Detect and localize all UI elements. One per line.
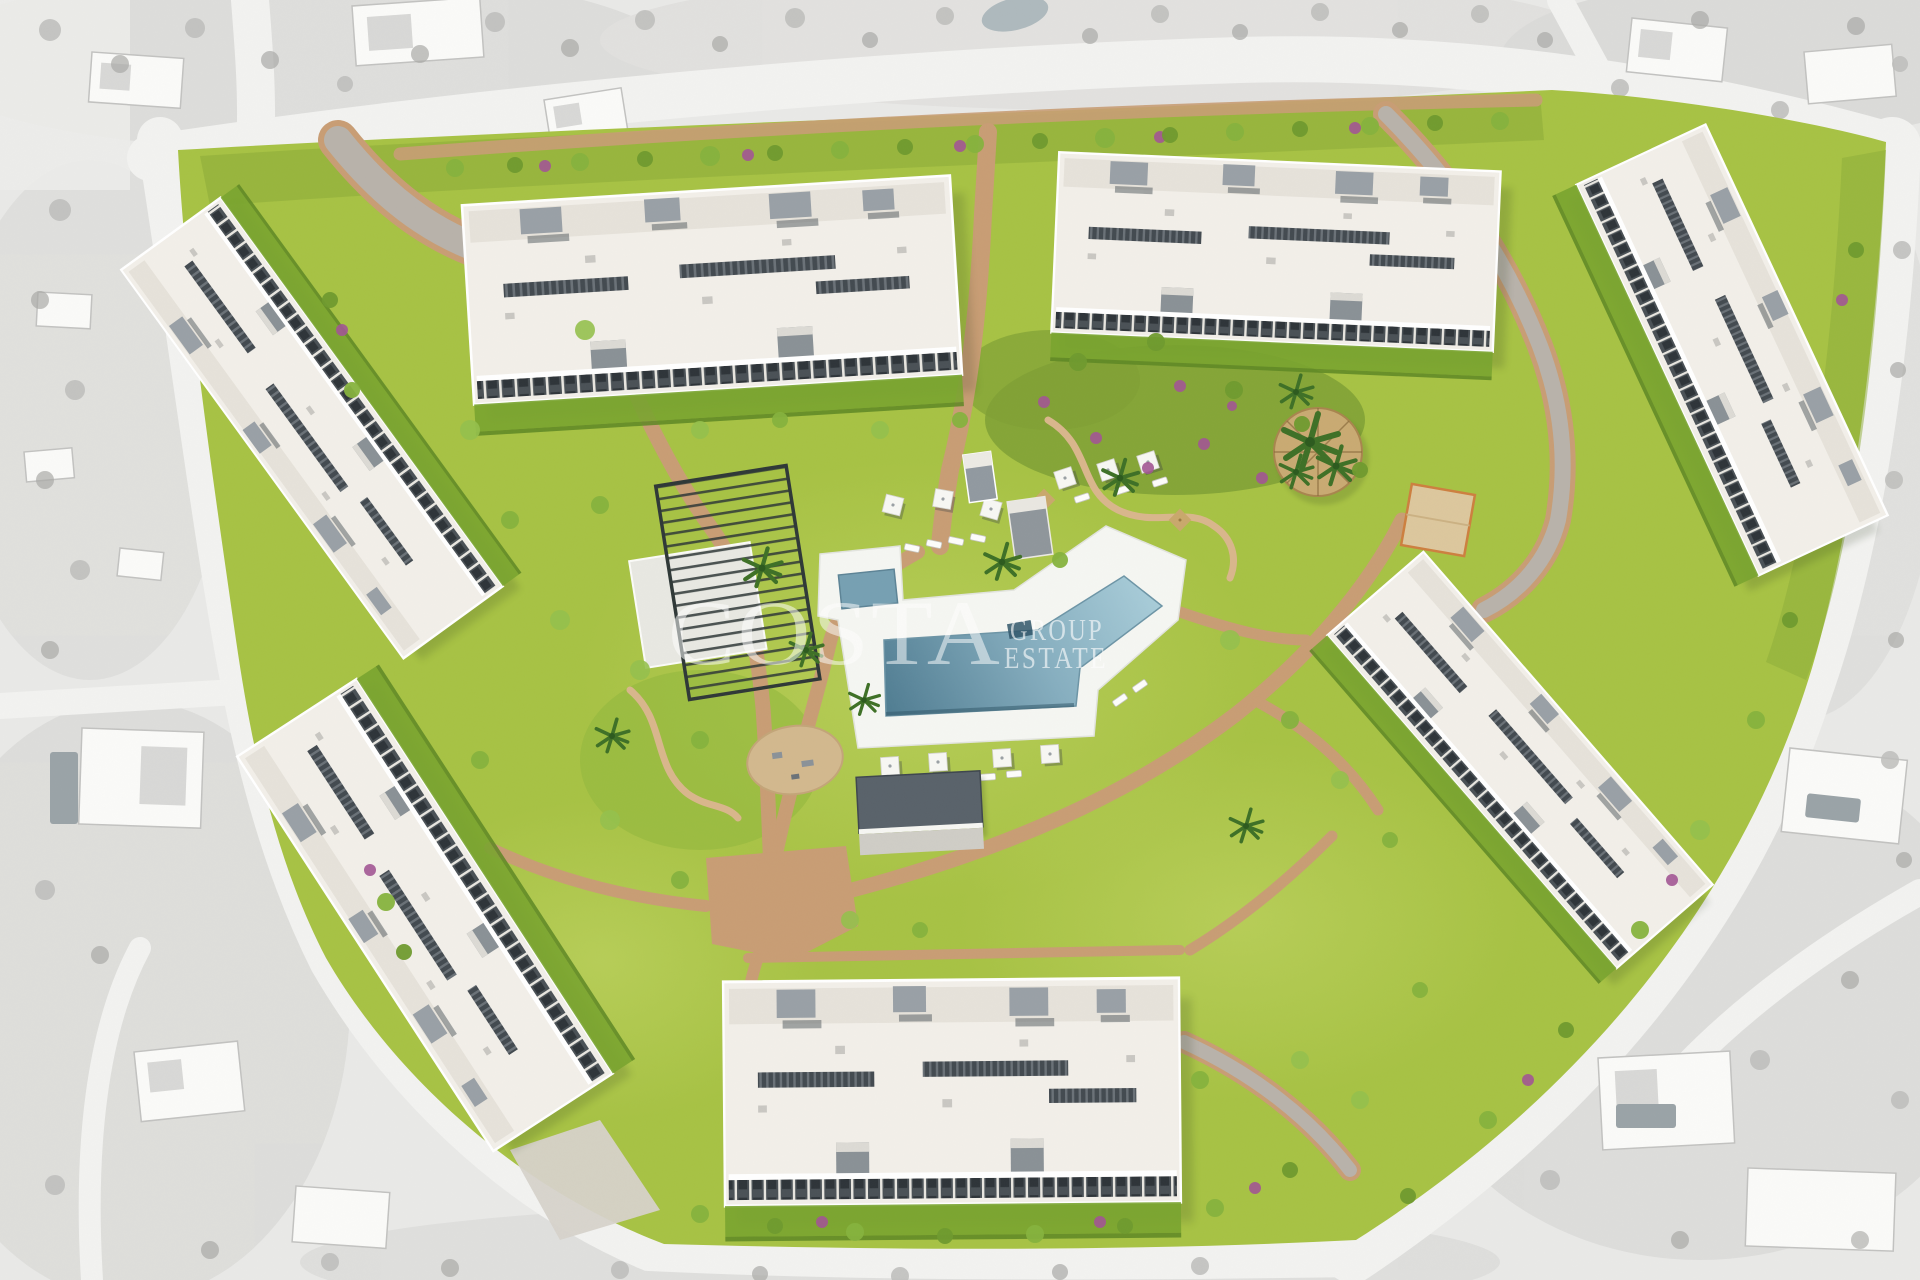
photo-grain-overlay: [0, 0, 1920, 1280]
aerial-site-plan: COSTA GROUP ESTATE: [0, 0, 1920, 1280]
site-plan-rendering: COSTA GROUP ESTATE: [0, 0, 1920, 1280]
